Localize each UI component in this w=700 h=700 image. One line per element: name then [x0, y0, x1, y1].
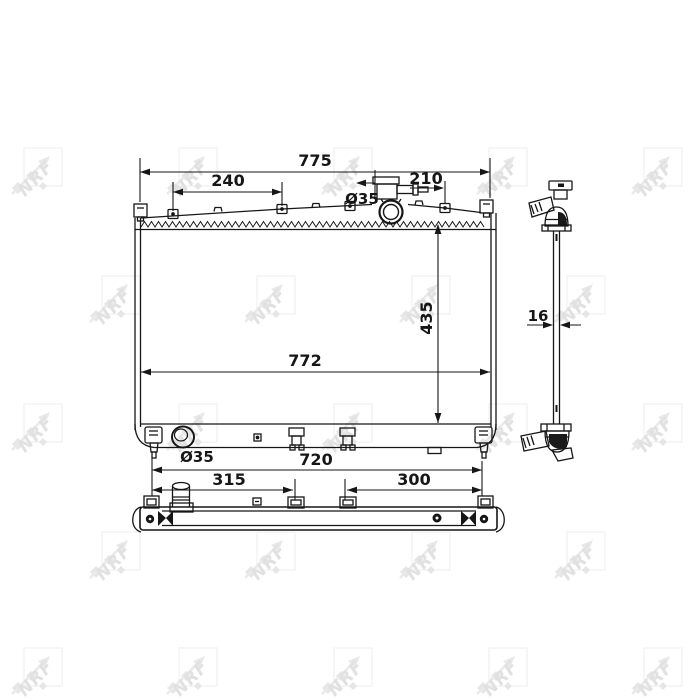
dim-775-label: 775 — [298, 151, 331, 170]
dim-drain-diameter: Ø35 — [180, 448, 214, 466]
front-view — [134, 177, 496, 458]
core-body — [135, 213, 496, 430]
nrf-watermark — [12, 648, 62, 700]
nrf-watermark — [555, 532, 605, 585]
nrf-watermark — [555, 276, 605, 329]
dim-300-label: 300 — [397, 470, 430, 489]
nrf-watermark — [245, 532, 295, 585]
side-top-bracket — [549, 181, 572, 199]
nrf-watermark — [245, 276, 295, 329]
bottom-clip-left — [289, 428, 304, 450]
dim-300: 300 — [345, 470, 482, 500]
dim-16-label: 16 — [528, 307, 549, 325]
nrf-watermark — [322, 648, 372, 700]
radiator-technical-drawing: NRF — [0, 0, 700, 700]
side-core-column — [554, 231, 560, 424]
nrf-watermark — [400, 532, 450, 585]
side-bottom-assembly — [521, 424, 573, 461]
dim-drain-diameter-label: Ø35 — [180, 448, 214, 466]
side-inlet-spout — [529, 197, 554, 217]
dim-435: 435 — [417, 224, 441, 423]
dim-210: 210 — [409, 169, 445, 203]
nrf-watermark — [90, 276, 140, 329]
nrf-watermark — [167, 648, 217, 700]
nrf-watermark — [477, 148, 527, 201]
nrf-watermark — [632, 148, 682, 201]
nrf-watermark — [12, 404, 62, 457]
dim-neck-diameter-label: Ø35 — [345, 190, 379, 208]
drawing-canvas: NRF — [0, 0, 700, 700]
dim-210-label: 210 — [409, 169, 442, 188]
dim-240-label: 240 — [211, 171, 244, 190]
nrf-watermark — [167, 148, 217, 201]
nrf-watermark — [90, 532, 140, 585]
dim-720-label: 720 — [299, 450, 332, 469]
top-edge-clips — [168, 201, 450, 219]
nrf-watermark — [632, 648, 682, 700]
nrf-watermark — [477, 648, 527, 700]
nrf-watermark — [322, 404, 372, 457]
lower-left-bracket — [145, 427, 162, 458]
dim-315-label: 315 — [212, 470, 245, 489]
dim-435-label: 435 — [417, 301, 436, 334]
side-filler-cap — [542, 207, 571, 231]
nrf-watermark — [632, 404, 682, 457]
nrf-watermark — [477, 404, 527, 457]
core-serration — [141, 222, 484, 228]
top-tank-edge — [141, 205, 481, 219]
nrf-watermark — [12, 148, 62, 201]
dim-772-label: 772 — [288, 351, 321, 370]
